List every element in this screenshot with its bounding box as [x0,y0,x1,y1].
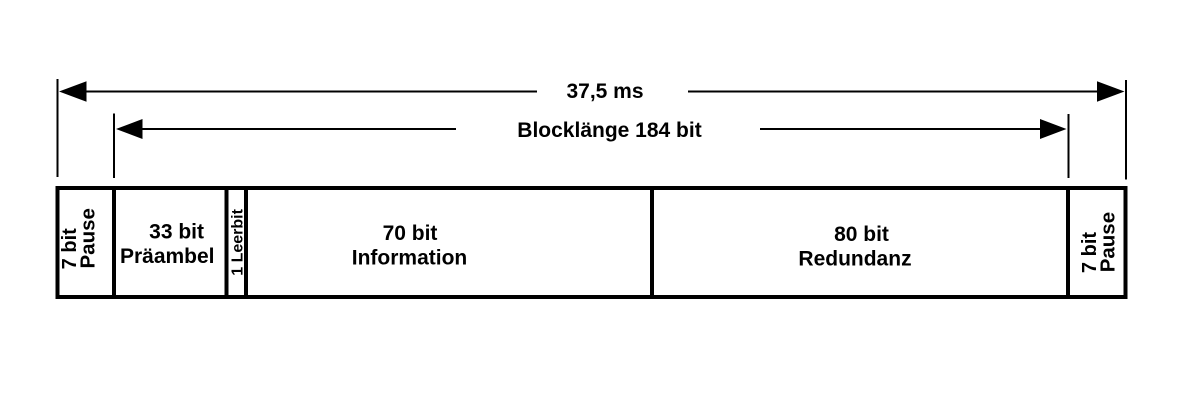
svg-text:Pause: Pause [77,208,100,268]
svg-text:Pause: Pause [1097,212,1120,272]
svg-text:37,5 ms: 37,5 ms [566,80,643,103]
svg-text:1 Leerbit: 1 Leerbit [230,208,247,275]
svg-text:Redundanz: Redundanz [798,248,911,271]
svg-text:80 bit: 80 bit [834,223,889,246]
svg-text:Blocklänge 184 bit: Blocklänge 184 bit [517,119,701,142]
svg-text:Information: Information [352,246,468,269]
svg-text:33 bit: 33 bit [149,221,204,244]
svg-text:70 bit: 70 bit [383,222,438,245]
svg-text:Präambel: Präambel [120,245,215,268]
